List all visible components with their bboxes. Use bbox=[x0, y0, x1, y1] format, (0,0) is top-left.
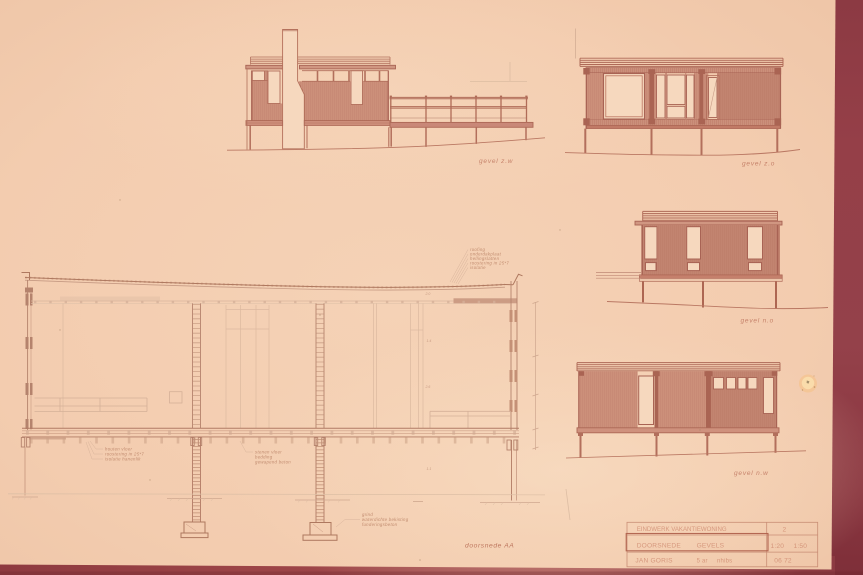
svg-text:gewapend beton: gewapend beton bbox=[255, 460, 291, 465]
svg-text:isolatie hanenlik: isolatie hanenlik bbox=[105, 457, 141, 462]
svg-text:DOORSNEDE: DOORSNEDE bbox=[637, 543, 682, 550]
svg-text:2.6: 2.6 bbox=[425, 385, 431, 389]
svg-text:5 ar: 5 ar bbox=[697, 559, 708, 565]
svg-text:GEVELS: GEVELS bbox=[697, 543, 725, 550]
svg-text:06 72: 06 72 bbox=[774, 558, 792, 565]
svg-text:gevel n.w: gevel n.w bbox=[734, 470, 769, 477]
svg-text:2.0: 2.0 bbox=[425, 292, 431, 296]
svg-text:gevel z.w: gevel z.w bbox=[479, 158, 514, 165]
svg-text:gevel n.o: gevel n.o bbox=[741, 318, 775, 325]
svg-text:isolatie: isolatie bbox=[470, 265, 486, 270]
svg-text:1:50: 1:50 bbox=[794, 543, 808, 550]
svg-text:1.1: 1.1 bbox=[427, 467, 432, 471]
svg-text:funderingsbeton: funderingsbeton bbox=[362, 522, 398, 527]
svg-text:EINDWERK VAKANTIEWONING: EINDWERK VAKANTIEWONING bbox=[637, 526, 727, 533]
svg-text:1.4: 1.4 bbox=[427, 339, 432, 343]
svg-text:JAN GORIS: JAN GORIS bbox=[635, 558, 673, 565]
svg-text:2: 2 bbox=[783, 527, 787, 534]
svg-text:1:20: 1:20 bbox=[771, 543, 785, 550]
svg-text:nhibs: nhibs bbox=[717, 559, 732, 565]
svg-text:doorsnede AA: doorsnede AA bbox=[465, 543, 514, 550]
svg-text:gevel z.o: gevel z.o bbox=[742, 161, 775, 168]
